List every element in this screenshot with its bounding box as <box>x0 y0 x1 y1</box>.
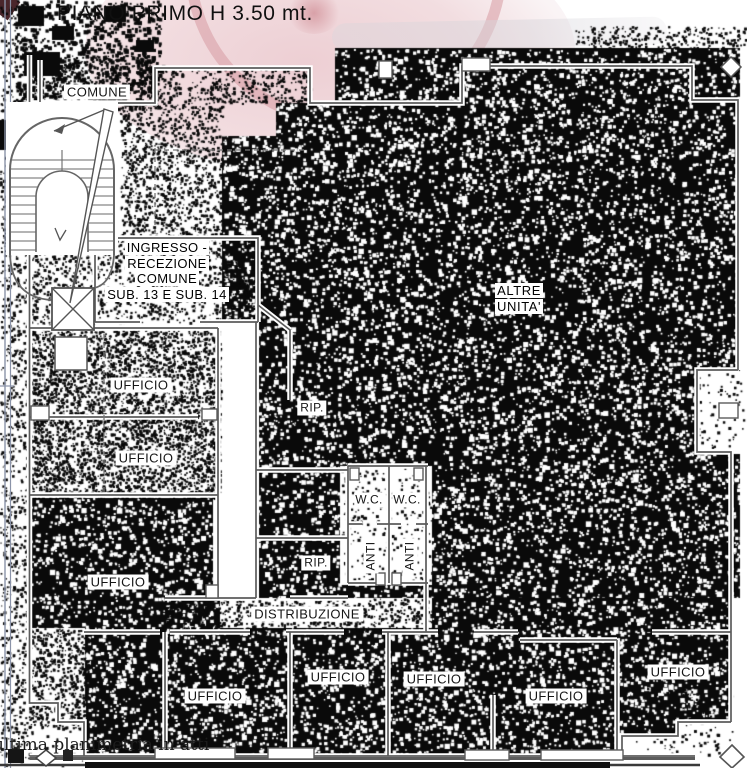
window <box>462 58 490 71</box>
room-label-altre-unita: ALTRE UNITA' <box>495 283 543 315</box>
room-label-rip-1: RIP. <box>297 401 326 416</box>
door-jamb <box>392 573 401 585</box>
ingresso-line3: COMUNE <box>135 271 199 286</box>
door-jamb <box>414 468 423 480</box>
room-label-rip-2: RIP. <box>301 556 330 571</box>
page-title: PIANO PRIMO H 3.50 mt. <box>57 2 313 26</box>
registration-marks <box>8 57 744 768</box>
room-label-ufficio-bottom-1: UFFICIO <box>185 689 246 704</box>
room-label-ufficio-left-3: UFFICIO <box>88 575 149 590</box>
room-label-ufficio-bottom-2: UFFICIO <box>308 670 369 685</box>
room-label-ufficio-bottom-5: UFFICIO <box>648 665 709 680</box>
scanned-floorplan-page: PIANO PRIMO H 3.50 mt. COMUNE INGRESSO -… <box>0 0 747 768</box>
footer-annotation: ultima planimetria in atti <box>0 735 209 755</box>
room-label-anti-1: ANTI <box>364 539 379 574</box>
window <box>268 748 314 759</box>
room-label-ufficio-bottom-3: UFFICIO <box>404 672 465 687</box>
room-label-ufficio-bottom-4: UFFICIO <box>526 689 587 704</box>
room-label-comune: COMUNE <box>64 85 130 100</box>
window <box>465 750 509 760</box>
room-label-anti-2: ANTI <box>403 539 418 574</box>
wall-casing <box>30 55 739 756</box>
window <box>379 61 392 78</box>
ingresso-line1: INGRESSO - <box>125 240 210 255</box>
door-jamb <box>350 468 359 480</box>
room-label-ufficio-left-2: UFFICIO <box>116 451 177 466</box>
window <box>31 406 49 420</box>
door-leaf <box>202 409 217 420</box>
shaft-box <box>55 337 87 370</box>
door-jamb <box>376 573 385 585</box>
altre-line2: UNITA' <box>495 299 543 314</box>
window <box>719 403 738 418</box>
ingresso-recezione-label: INGRESSO - RECEZIONE COMUNE SUB. 13 E SU… <box>88 240 246 302</box>
room-label-wc-2: W.C. <box>392 493 422 508</box>
window <box>541 750 623 760</box>
room-label-wc-1: W.C. <box>354 493 384 508</box>
registration-diamond-icon <box>721 57 741 77</box>
corridor-label-distribuzione: DISTRIBUZIONE <box>251 607 363 622</box>
ingresso-line4: SUB. 13 E SUB. 14 <box>105 287 229 302</box>
ingresso-line2: RECEZIONE <box>125 256 208 271</box>
doors-and-windows <box>31 58 738 760</box>
altre-line1: ALTRE <box>495 283 543 298</box>
room-label-ufficio-left-1: UFFICIO <box>111 378 172 393</box>
walls <box>30 55 739 759</box>
door-leaf <box>206 585 218 598</box>
registration-diamond-icon <box>720 745 744 768</box>
